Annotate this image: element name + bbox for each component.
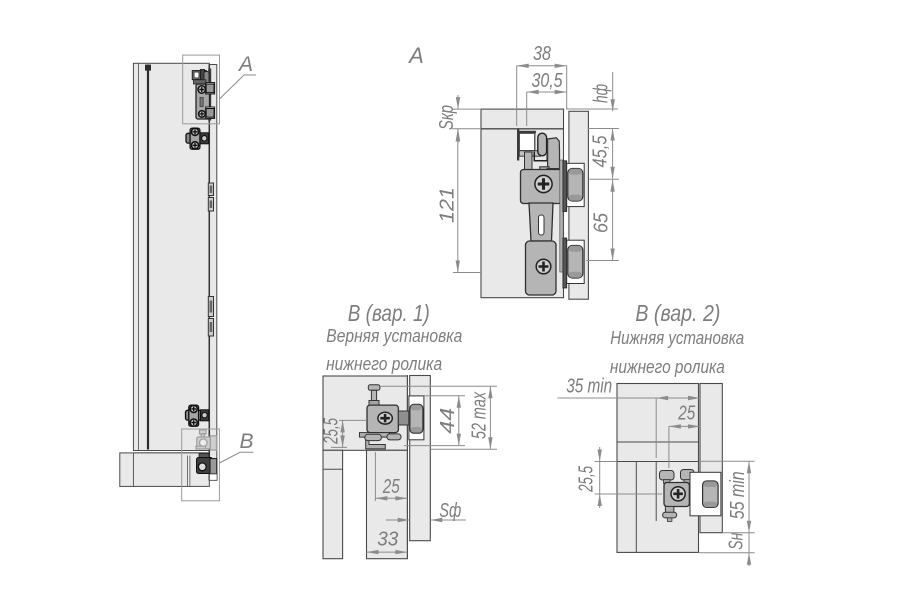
svg-text:Sкр: Sкр	[436, 105, 458, 130]
svg-text:A: A	[407, 43, 424, 68]
svg-text:Нижняя установка: Нижняя установка	[610, 328, 744, 348]
svg-text:нижнего ролика: нижнего ролика	[610, 357, 725, 377]
svg-text:В (вар. 2): В (вар. 2)	[635, 300, 720, 326]
svg-text:52 max: 52 max	[469, 391, 491, 439]
svg-text:hф: hф	[591, 84, 613, 103]
svg-text:В (вар. 1): В (вар. 1)	[348, 300, 430, 326]
svg-text:Sн: Sн	[726, 533, 748, 550]
svg-text:25,5: 25,5	[321, 417, 343, 444]
svg-text:A: A	[237, 53, 253, 76]
svg-text:44: 44	[437, 408, 459, 434]
svg-text:38: 38	[533, 43, 551, 65]
svg-text:55 min: 55 min	[727, 471, 749, 519]
svg-text:Верняя установка: Верняя установка	[326, 326, 462, 346]
svg-text:25: 25	[382, 476, 400, 498]
svg-text:33: 33	[377, 529, 398, 551]
svg-text:Sф: Sф	[439, 500, 461, 522]
svg-text:B: B	[239, 430, 253, 453]
svg-text:нижнего ролика: нижнего ролика	[326, 354, 442, 374]
svg-text:30,5: 30,5	[532, 70, 564, 92]
svg-text:65: 65	[591, 212, 613, 233]
svg-text:121: 121	[436, 187, 458, 223]
svg-text:25: 25	[678, 403, 696, 425]
svg-text:45,5: 45,5	[590, 135, 612, 168]
svg-text:35 min: 35 min	[566, 376, 612, 398]
svg-text:25,5: 25,5	[575, 465, 597, 492]
